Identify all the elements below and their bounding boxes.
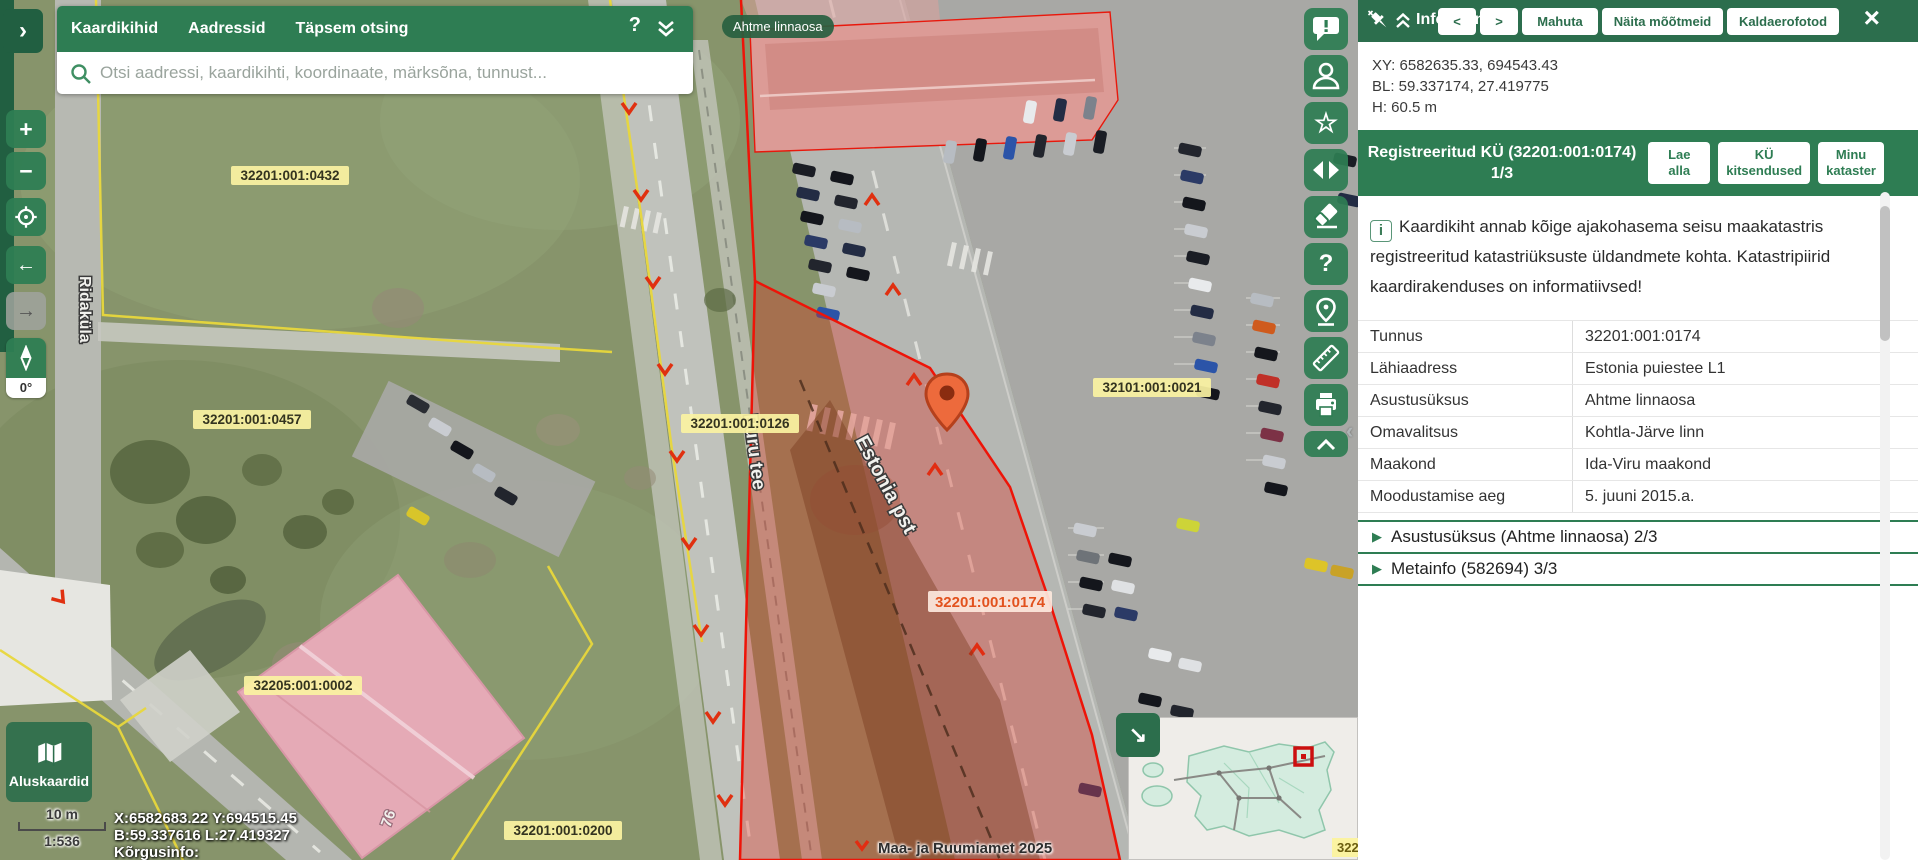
search-tabbar: Kaardikihid Aadressid Täpsem otsing ? — [57, 6, 693, 52]
accordion-metainfo[interactable]: ▶ Metainfo (582694) 3/3 — [1358, 554, 1918, 586]
compare-button[interactable] — [1304, 149, 1348, 191]
restrictions-button[interactable]: KÜ kitsendused — [1718, 142, 1810, 184]
double-chevron-up-icon[interactable] — [1394, 12, 1412, 35]
query-bl: BL: 59.337174, 27.419775 — [1372, 76, 1918, 97]
sidebar-expand-button[interactable]: › — [3, 9, 43, 53]
height-info: Kõrgusinfo: — [114, 844, 297, 860]
chevron-left-icon: ‹ — [1346, 418, 1353, 443]
row-value: 5. juuni 2015.a. — [1572, 481, 1918, 512]
add-marker-button[interactable] — [1304, 290, 1348, 332]
row-label: Tunnus — [1358, 328, 1572, 346]
close-icon: × — [1864, 2, 1880, 33]
map-toolbar: ☆ ? — [1304, 8, 1348, 457]
row-label: Maakond — [1358, 456, 1572, 474]
locate-icon — [9, 200, 43, 234]
tab-aadressid[interactable]: Aadressid — [188, 20, 265, 38]
my-cadastre-button[interactable]: Minu kataster — [1818, 142, 1884, 184]
next-result-button[interactable]: > — [1480, 8, 1518, 35]
accordion-label: Asustusüksus (Ahtme linnaosa) 2/3 — [1391, 527, 1657, 547]
accordion-list: ▶ Asustusüksus (Ahtme linnaosa) 2/3 ▶ Me… — [1358, 520, 1918, 586]
plus-icon: + — [19, 116, 32, 143]
print-button[interactable] — [1304, 384, 1348, 426]
overview-expand-button[interactable]: ↘ — [1116, 713, 1160, 757]
scale-ratio: 1:536 — [14, 833, 110, 849]
scrollbar-thumb[interactable] — [1880, 206, 1890, 341]
row-value: 32201:001:0174 — [1572, 321, 1918, 352]
oblique-photos-button[interactable]: Kaldaerofotod — [1727, 8, 1839, 35]
row-label: Lähiaadress — [1358, 360, 1572, 378]
result-section-header[interactable]: Registreeritud KÜ (32201:001:0174) 1/3 L… — [1358, 130, 1918, 196]
info-panel: Infopäring < > Mahuta Näita mõõtmeid Kal… — [1358, 0, 1918, 860]
section-actions: Lae alla KÜ kitsendused Minu kataster — [1648, 142, 1884, 184]
table-row: Asustusüksus Ahtme linnaosa — [1358, 385, 1918, 417]
table-row: Moodustamise aeg 5. juuni 2015.a. — [1358, 481, 1918, 513]
row-label: Asustusüksus — [1358, 392, 1572, 410]
row-value: Estonia puiestee L1 — [1572, 353, 1918, 384]
chevron-up-icon — [1304, 433, 1348, 455]
cursor-coordinates: X:6582683.22 Y:694515.45 B:59.337616 L:2… — [114, 810, 297, 860]
collapse-panel-icon[interactable] — [655, 19, 677, 44]
zoom-out-button[interactable]: − — [6, 152, 46, 190]
basemap-button[interactable]: Aluskaardid — [6, 722, 92, 802]
overview-map[interactable] — [1128, 717, 1358, 860]
eraser-icon — [1305, 196, 1347, 238]
query-coordinates: XY: 6582635.33, 694543.43 BL: 59.337174,… — [1358, 42, 1918, 118]
row-value: Ahtme linnaosa — [1572, 385, 1918, 416]
search-panel: Kaardikihid Aadressid Täpsem otsing ? — [57, 6, 693, 94]
panel-collapse-handle[interactable]: ‹ — [1346, 418, 1353, 444]
arrow-left-icon: ← — [16, 254, 36, 277]
accordion-asustusuksus[interactable]: ▶ Asustusüksus (Ahtme linnaosa) 2/3 — [1358, 522, 1918, 554]
compare-arrows-icon — [1305, 149, 1347, 191]
section-title: Registreeritud KÜ (32201:001:0174) 1/3 — [1358, 142, 1646, 184]
chevron-right-icon: › — [19, 17, 27, 44]
layer-notice: iKaardikiht annab kõige ajakohasema seis… — [1358, 196, 1918, 308]
attribute-table: Tunnus 32201:001:0174 Lähiaadress Estoni… — [1358, 320, 1918, 513]
locate-button[interactable] — [6, 198, 46, 236]
history-back-button[interactable]: ← — [6, 246, 46, 284]
search-icon — [69, 62, 92, 85]
parcel-label: 32205:001:0002 — [253, 678, 352, 693]
prev-result-button[interactable]: < — [1438, 8, 1476, 35]
parcel-label: 32201:001:0126 — [690, 416, 790, 431]
map-application: Ridaküla Puru tee Estonia pst 76 32201:0… — [0, 0, 1918, 860]
show-measurements-button[interactable]: Näita mõõtmeid — [1602, 8, 1723, 35]
expand-triangle-icon: ▶ — [1372, 561, 1382, 577]
tab-kaardikihid[interactable]: Kaardikihid — [71, 20, 158, 38]
basemap-label: Aluskaardid — [9, 773, 89, 789]
query-height: H: 60.5 m — [1372, 97, 1918, 118]
scale-distance: 10 m — [14, 806, 110, 822]
user-icon — [1305, 55, 1347, 97]
parcel-label: 32201:001:0457 — [202, 412, 301, 427]
marker-icon — [1305, 290, 1347, 332]
ruler-icon — [1305, 337, 1347, 379]
compass-needle-icon — [6, 338, 46, 378]
rotation-value: 0° — [6, 378, 46, 398]
basemap-icon — [29, 735, 69, 769]
parcel-label: 32101:001:0021 — [1102, 380, 1202, 395]
zoom-in-button[interactable]: + — [6, 110, 46, 148]
unpin-icon[interactable] — [1366, 8, 1392, 39]
table-row: Omavalitsus Kohtla-Järve linn — [1358, 417, 1918, 449]
parcel-label: 32201:001:0200 — [513, 823, 612, 838]
clipped-parcel-label: 322 — [1332, 838, 1358, 857]
expand-triangle-icon: ▶ — [1372, 529, 1382, 545]
table-row: Lähiaadress Estonia puiestee L1 — [1358, 353, 1918, 385]
info-icon: i — [1370, 220, 1392, 242]
map-attribution: Maa- ja Ruumiamet 2025 — [878, 840, 1052, 857]
tab-tapsem-otsing[interactable]: Täpsem otsing — [296, 20, 409, 38]
query-xy: XY: 6582635.33, 694543.43 — [1372, 55, 1918, 76]
accordion-label: Metainfo (582694) 3/3 — [1391, 559, 1557, 579]
coords-xy: X:6582683.22 Y:694515.45 — [114, 810, 297, 827]
scale-bar — [18, 822, 106, 831]
user-button[interactable] — [1304, 55, 1348, 97]
row-label: Omavalitsus — [1358, 424, 1572, 442]
help-icon[interactable]: ? — [629, 14, 641, 37]
table-row: Maakond Ida-Viru maakond — [1358, 449, 1918, 481]
search-box[interactable] — [57, 52, 693, 94]
info-panel-header: Infopäring < > Mahuta Näita mõõtmeid Kal… — [1358, 0, 1918, 42]
star-icon: ☆ — [1314, 108, 1338, 139]
arrow-right-icon: → — [16, 300, 36, 323]
parcel-label: 32201:001:0432 — [240, 168, 339, 183]
bookmarks-button[interactable]: ☆ — [1304, 102, 1348, 144]
close-panel-button[interactable]: × — [1864, 2, 1880, 34]
history-forward-button[interactable]: → — [6, 292, 46, 330]
region-label: Ahtme linnaosa — [722, 15, 834, 38]
row-value: Kohtla-Järve linn — [1572, 417, 1918, 448]
feedback-icon — [1305, 8, 1347, 50]
eraser-button[interactable] — [1304, 196, 1348, 238]
fit-button[interactable]: Mahuta — [1522, 8, 1598, 35]
measure-button[interactable] — [1304, 337, 1348, 379]
notice-text: Kaardikiht annab kõige ajakohasema seisu… — [1370, 217, 1830, 296]
arrow-down-right-icon: ↘ — [1129, 722, 1147, 747]
row-value: Ida-Viru maakond — [1572, 449, 1918, 480]
street-label-ridakula: Ridaküla — [76, 276, 93, 343]
panel-scrollbar[interactable] — [1880, 192, 1890, 860]
help-button[interactable]: ? — [1304, 243, 1348, 285]
toolbar-collapse-button[interactable] — [1304, 431, 1348, 457]
compass-control[interactable]: 0° — [6, 338, 46, 398]
search-input[interactable] — [100, 63, 681, 83]
feedback-button[interactable] — [1304, 8, 1348, 50]
map-canvas[interactable]: Ridaküla Puru tee Estonia pst 76 32201:0… — [0, 0, 1358, 860]
download-button[interactable]: Lae alla — [1648, 142, 1710, 184]
coords-bl: B:59.337616 L:27.419327 — [114, 827, 297, 844]
question-icon: ? — [1319, 250, 1334, 278]
minus-icon: − — [19, 158, 32, 185]
table-row: Tunnus 32201:001:0174 — [1358, 321, 1918, 353]
row-label: Moodustamise aeg — [1358, 488, 1572, 506]
printer-icon — [1305, 384, 1347, 426]
scale-control: 10 m 1:536 — [14, 806, 110, 849]
selected-parcel-label: 32201:001:0174 — [935, 594, 1046, 611]
